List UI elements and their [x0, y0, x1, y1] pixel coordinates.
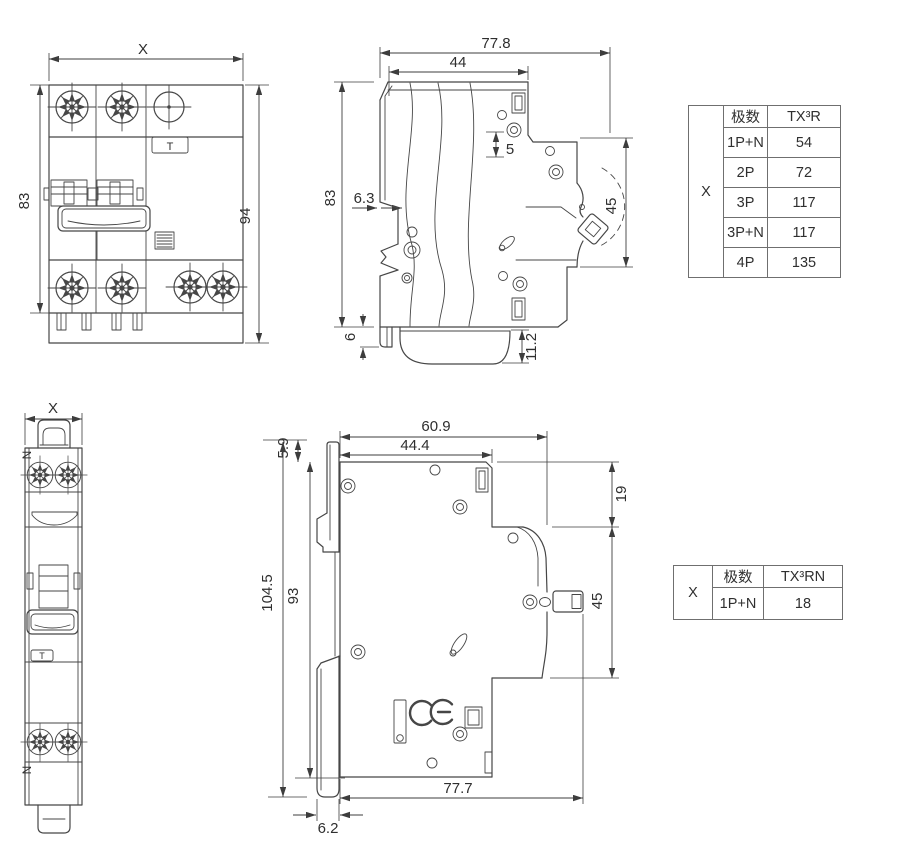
rivets-and-vents [402, 93, 563, 320]
screw-icon [48, 264, 96, 312]
dim-handle-45: 45 [580, 138, 633, 267]
test-button-1pn-label: T [39, 651, 45, 661]
base-foot [400, 327, 510, 364]
dim-gap-5-label: 5 [506, 141, 514, 158]
dim-handle-45-1pn: 45 [550, 527, 619, 678]
dim-handle-45-label: 45 [603, 198, 620, 215]
neutral-label-top: N [20, 451, 34, 460]
dimension-table-tx3r: X 极数 TX³R 1P+N 54 2P 72 3P 117 3P+N 117 … [688, 105, 841, 278]
dim-base-11-2-label: 11.2 [523, 333, 540, 361]
dim-width-x: X [49, 41, 243, 81]
dimension-table-tx3rn: X 极数 TX³RN 1P+N 18 [673, 565, 843, 620]
dim-depth-77-8: 77.8 [380, 35, 610, 133]
dim-height-93: 93 [285, 462, 345, 778]
table-row: X 极数 TX³R [689, 106, 841, 128]
screw-icon [98, 83, 146, 131]
table-cell-poles: 4P [724, 248, 768, 278]
neutral-label-bottom: N [20, 766, 34, 775]
dim-rail-6-3: 6.3 [352, 190, 402, 208]
terminal-screws-bottom [48, 263, 247, 312]
table-corner-x: X [674, 566, 713, 620]
din-mounting-plate [317, 442, 340, 797]
table-corner-x: X [689, 106, 724, 278]
screw-icon [199, 263, 247, 311]
table-row: X 极数 TX³RN [674, 566, 843, 588]
column-header-poles: 极数 [724, 106, 768, 128]
dim-height-83-side-label: 83 [322, 190, 339, 207]
dim-height-93-label: 93 [285, 588, 302, 605]
housing-seam-lines [406, 83, 576, 326]
terminal-screws-top-1pn [21, 456, 87, 494]
column-header-series: TX³RN [764, 566, 843, 588]
dim-step-19: 19 [497, 462, 630, 527]
bottom-clip [38, 805, 70, 833]
test-button-1pn: T [31, 650, 53, 661]
table-cell-poles: 2P [724, 158, 768, 188]
table-cell-poles: 1P+N [713, 588, 764, 620]
dim-clip-6-label: 6 [342, 333, 359, 341]
screw-icon [48, 83, 96, 131]
column-header-series: TX³R [768, 106, 841, 128]
dim-height-104-5-label: 104.5 [259, 574, 276, 612]
ce-mark-icon [410, 700, 452, 725]
table-cell-poles: 3P+N [724, 218, 768, 248]
terminal-shutter [32, 512, 77, 525]
toggle-handle-1pn [27, 610, 78, 634]
side-body-outline-1pn [340, 462, 547, 777]
front-view-2p: X 83 94 [15, 25, 285, 365]
dim-clip-6: 6 [342, 314, 379, 360]
front-view-1pn: X N [10, 395, 140, 840]
dim-depth-44-4-label: 44.4 [400, 437, 429, 454]
table-cell-width: 54 [768, 128, 841, 158]
dim-clip-5-9: 5.9 [263, 438, 307, 462]
dim-plate-6-2: 6.2 [293, 799, 363, 837]
dim-depth-60-9: 60.9 [340, 418, 547, 525]
toggle-handle [58, 206, 150, 260]
dim-height-94-label: 94 [237, 208, 254, 225]
dim-base-11-2: 11.2 [502, 330, 540, 363]
column-header-poles: 极数 [713, 566, 764, 588]
dim-plate-6-2-label: 6.2 [318, 820, 339, 837]
mechanism-blocks [44, 180, 143, 206]
dim-height-104-5: 104.5 [259, 442, 307, 797]
table-cell-width: 72 [768, 158, 841, 188]
dim-width-x-label: X [138, 41, 148, 58]
dim-height-83: 83 [16, 85, 51, 313]
dim-depth-44-label: 44 [450, 54, 467, 71]
terminal-screws-bottom-1pn [21, 723, 87, 761]
table-cell-poles: 3P [724, 188, 768, 218]
dim-width-x-1pn: X [25, 400, 82, 445]
dim-height-83-label: 83 [16, 193, 33, 210]
top-clip [38, 420, 70, 448]
dim-width-x-1pn-label: X [48, 400, 58, 417]
side-body-outline [380, 82, 583, 327]
test-button-circle [147, 85, 191, 129]
connection-pins [57, 313, 142, 330]
table-cell-width: 117 [768, 218, 841, 248]
din-rail-clip-side [380, 327, 392, 347]
label-window [155, 232, 174, 249]
dim-handle-45-1pn-label: 45 [589, 593, 606, 610]
dim-depth-60-9-label: 60.9 [421, 418, 450, 435]
table-cell-poles: 1P+N [724, 128, 768, 158]
screw-icon [98, 264, 146, 312]
dim-depth-77-7-label: 77.7 [443, 780, 472, 797]
narrow-body-outline [25, 448, 82, 805]
dim-height-94: 94 [237, 85, 269, 343]
side-view-1pn: 5.9 60.9 44.4 19 45 104.5 [255, 400, 645, 840]
dim-step-19-label: 19 [613, 486, 630, 503]
test-button-t: T [152, 137, 188, 153]
table-cell-width: 117 [768, 188, 841, 218]
dim-rail-6-3-label: 6.3 [354, 190, 375, 207]
table-cell-width: 18 [764, 588, 843, 620]
dim-clip-5-9-label: 5.9 [275, 438, 292, 459]
terminal-screws-top [48, 83, 146, 131]
side-view-2p: 77.8 44 5 83 6.3 45 [330, 20, 660, 380]
toggle-lever-side-1pn [540, 591, 584, 612]
technical-drawing-page: X 83 94 [0, 0, 900, 857]
table-cell-width: 135 [768, 248, 841, 278]
dim-depth-44-4: 44.4 [340, 437, 492, 463]
dim-depth-77-8-label: 77.8 [481, 35, 510, 52]
mechanism-1pn [27, 565, 80, 608]
test-button-label: T [167, 141, 174, 153]
